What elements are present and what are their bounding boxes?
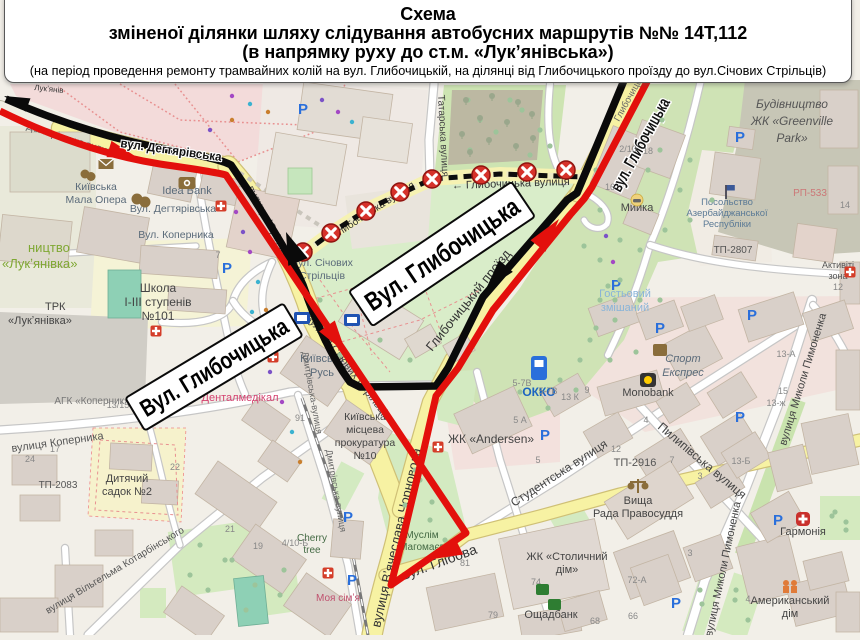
svg-text:дім»: дім»: [556, 564, 579, 576]
svg-text:79: 79: [488, 610, 498, 620]
svg-text:Київська: Київська: [75, 181, 117, 193]
svg-text:5 А: 5 А: [513, 415, 527, 425]
svg-text:13-Б: 13-Б: [732, 456, 751, 466]
svg-text:ЖК «Столичний: ЖК «Столичний: [526, 551, 607, 563]
svg-text:Республіки: Республіки: [703, 219, 751, 230]
svg-text:дім: дім: [782, 608, 798, 620]
svg-text:P: P: [343, 509, 353, 526]
svg-text:Вища: Вища: [624, 495, 654, 507]
svg-text:ТП-2916: ТП-2916: [614, 457, 657, 469]
svg-text:Посольство: Посольство: [701, 197, 753, 208]
svg-text:9: 9: [584, 385, 589, 395]
svg-text:12: 12: [611, 444, 621, 454]
svg-text:3: 3: [687, 548, 692, 558]
svg-text:Вул. Коперника: Вул. Коперника: [138, 229, 214, 241]
svg-text:66: 66: [628, 611, 638, 621]
svg-text:Рада Правосуддя: Рада Правосуддя: [593, 508, 683, 520]
svg-text:12: 12: [833, 282, 843, 292]
svg-text:14: 14: [840, 200, 850, 210]
svg-text:Денталмедікал: Денталмедікал: [202, 392, 279, 404]
svg-text:5-7В: 5-7В: [538, 386, 557, 396]
svg-text:21: 21: [225, 524, 235, 534]
svg-text:4: 4: [643, 415, 648, 425]
svg-text:P: P: [735, 129, 745, 146]
svg-text:P: P: [298, 101, 308, 118]
svg-text:Моя сімʼя: Моя сімʼя: [316, 593, 360, 604]
svg-text:Гармонія: Гармонія: [780, 526, 826, 538]
svg-text:РП-533: РП-533: [793, 188, 827, 199]
svg-text:Ощадбанк: Ощадбанк: [524, 609, 577, 621]
svg-text:Дитячий: Дитячий: [106, 473, 149, 485]
svg-text:І-ІІІ ступенів: І-ІІІ ступенів: [124, 295, 191, 309]
svg-text:18: 18: [643, 146, 653, 156]
svg-text:Будівництво: Будівництво: [756, 97, 828, 111]
svg-text:P: P: [735, 409, 745, 426]
svg-text:прокуратура: прокуратура: [335, 437, 396, 449]
svg-text:ТП-2807: ТП-2807: [714, 245, 753, 256]
svg-text:«Лукʼянівка»: «Лукʼянівка»: [8, 315, 72, 327]
svg-text:P: P: [773, 512, 783, 529]
svg-text:4/10-Б: 4/10-Б: [282, 538, 309, 548]
svg-text:72-А: 72-А: [627, 575, 646, 585]
svg-text:13-А: 13-А: [776, 349, 795, 359]
svg-text:P: P: [347, 572, 357, 589]
svg-text:5-7В: 5-7В: [512, 378, 531, 388]
svg-text:P: P: [655, 320, 665, 337]
svg-text:P: P: [747, 307, 757, 324]
svg-text:17: 17: [50, 444, 60, 454]
svg-text:4: 4: [745, 594, 750, 604]
svg-text:Школа: Школа: [140, 281, 177, 295]
svg-text:24: 24: [25, 454, 35, 464]
svg-text:7: 7: [215, 250, 220, 260]
svg-text:91: 91: [295, 413, 305, 423]
svg-text:16: 16: [605, 182, 615, 192]
svg-text:ТРК: ТРК: [45, 301, 66, 313]
svg-text:Експрес: Експрес: [662, 367, 704, 379]
svg-text:№101: №101: [142, 309, 175, 323]
svg-text:3: 3: [697, 471, 702, 481]
svg-text:P: P: [671, 595, 681, 612]
svg-text:Муслім: Муслім: [405, 530, 438, 541]
svg-text:ЖК «Andersen»: ЖК «Andersen»: [448, 432, 534, 446]
svg-text:Американський: Американський: [751, 595, 830, 607]
svg-text:садок №2: садок №2: [102, 486, 152, 498]
svg-text:13 К: 13 К: [561, 392, 580, 402]
svg-text:7: 7: [669, 455, 674, 465]
svg-text:ЖК «Greenville: ЖК «Greenville: [750, 114, 833, 128]
svg-text:«Лукʼянівка»: «Лукʼянівка»: [2, 256, 77, 271]
svg-text:змішаний: змішаний: [601, 302, 649, 314]
svg-text:Гостьовий: Гостьовий: [599, 288, 651, 300]
svg-text:№10: №10: [354, 450, 377, 462]
svg-text:Monobank: Monobank: [622, 387, 674, 399]
svg-text:P: P: [222, 260, 232, 277]
svg-text:Стрільців: Стрільців: [299, 270, 346, 282]
svg-text:68: 68: [590, 616, 600, 626]
svg-text:Park»: Park»: [776, 131, 808, 145]
svg-text:13-ж: 13-ж: [766, 398, 785, 408]
svg-text:81: 81: [460, 558, 470, 568]
svg-text:13/15: 13/15: [107, 400, 130, 410]
svg-text:ТП-2083: ТП-2083: [39, 480, 78, 491]
svg-text:5: 5: [535, 455, 540, 465]
svg-text:22: 22: [170, 462, 180, 472]
svg-text:19: 19: [253, 541, 263, 551]
svg-text:Спорт: Спорт: [665, 353, 700, 365]
svg-text:Азербайджанської: Азербайджанської: [686, 208, 768, 219]
svg-text:15: 15: [778, 386, 788, 396]
svg-text:2/10: 2/10: [619, 144, 637, 154]
svg-text:P: P: [540, 427, 550, 444]
svg-text:Мала Опера: Мала Опера: [66, 194, 127, 206]
svg-text:ництво: ництво: [28, 240, 70, 255]
svg-text:місцева: місцева: [346, 424, 384, 436]
